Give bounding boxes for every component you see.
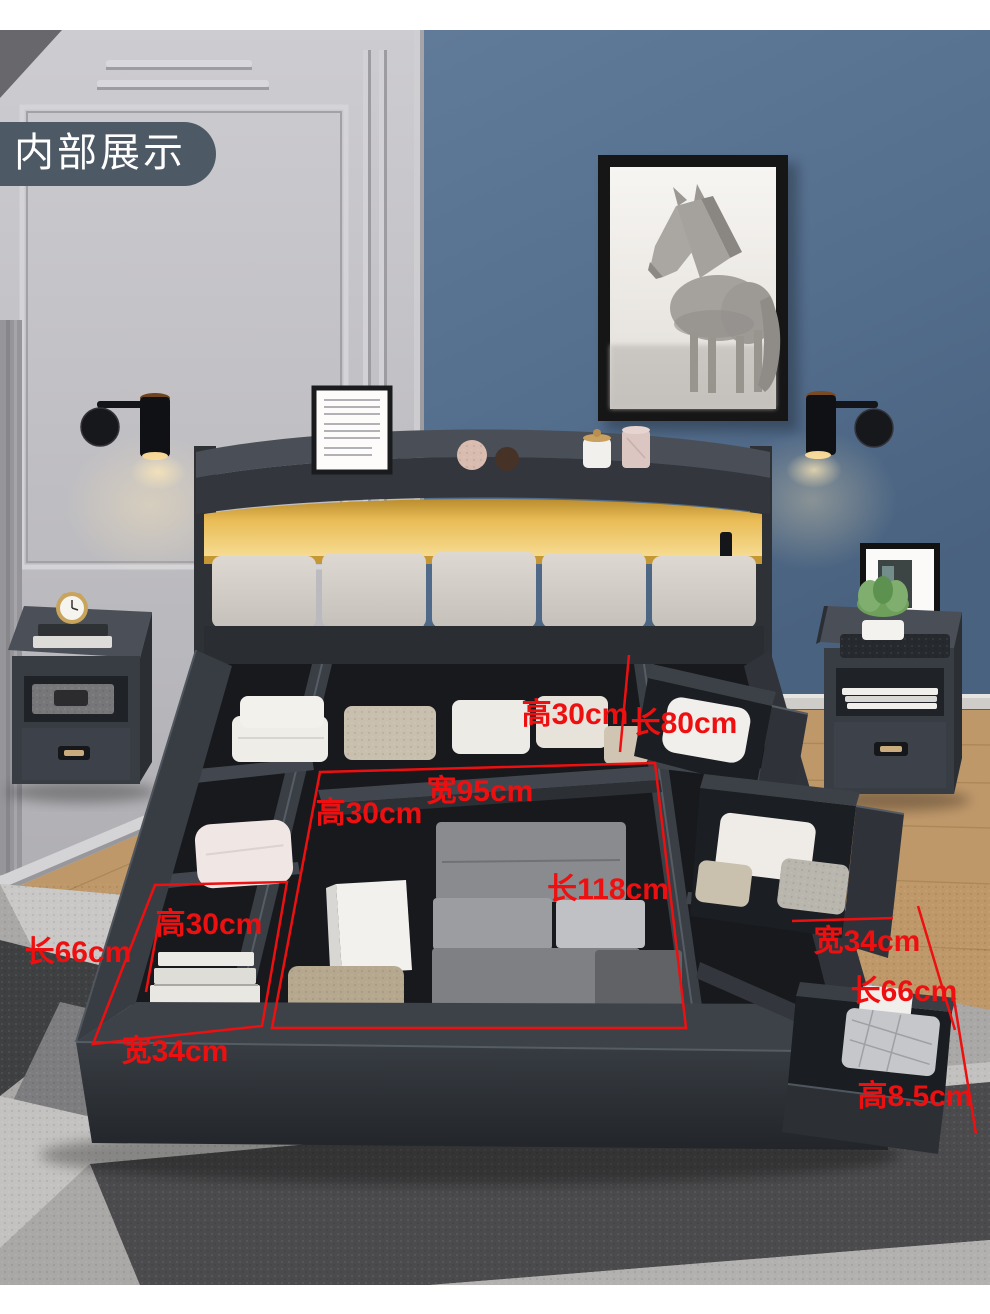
dim-label: 长66cm	[25, 936, 132, 969]
dim-label: 高30cm	[156, 908, 263, 941]
dim-label: 长80cm	[631, 707, 738, 740]
dim-label: 宽34cm	[122, 1034, 229, 1068]
alarm-clock	[56, 592, 88, 624]
decor-sphere-brown	[495, 447, 519, 471]
headboard-cushions	[212, 552, 756, 628]
left-nightstand-shadow	[7, 781, 157, 803]
dim-label: 长118cm	[547, 873, 669, 906]
dim-label: 高30cm	[316, 797, 423, 830]
books-stack	[33, 624, 112, 648]
horse-artwork	[598, 155, 798, 431]
decor-sphere-pink-texture	[457, 440, 487, 470]
music-sheet-frame	[314, 388, 390, 472]
dim-label: 高8.5cm	[857, 1080, 972, 1113]
left-nightstand	[8, 592, 152, 784]
dim-label: 宽95cm	[427, 774, 534, 808]
dim-label: 宽34cm	[814, 924, 921, 958]
dim-label: 长66cm	[851, 975, 958, 1008]
dim-label: 高30cm	[522, 698, 629, 731]
bedroom-scene: 高30cm 长80cm 宽95cm 高30cm 长118cm 高30cm 长66…	[0, 0, 990, 1314]
corner-badge: 内部展示	[0, 122, 216, 186]
badge-label: 内部展示	[14, 131, 186, 175]
product-photo: 内部展示	[0, 0, 990, 1314]
marble-jar	[622, 426, 650, 468]
magazines	[842, 688, 938, 709]
